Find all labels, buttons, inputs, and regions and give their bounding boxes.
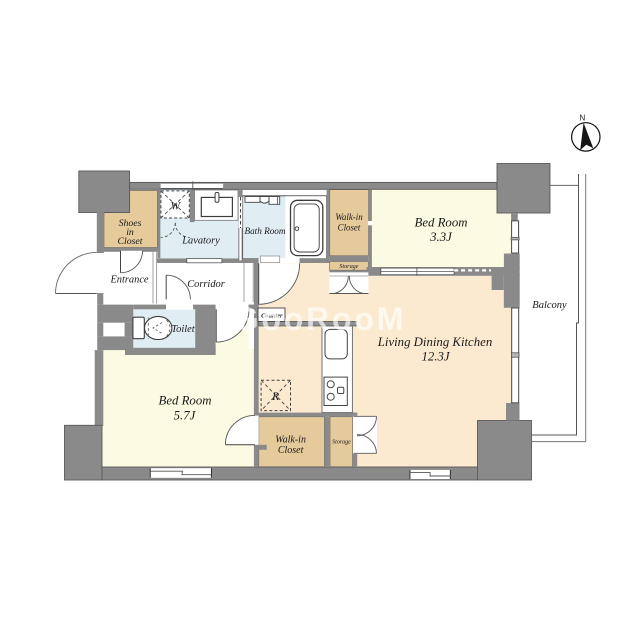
- svg-text:Storage: Storage: [339, 263, 359, 270]
- svg-text:Walk-in: Walk-in: [275, 435, 306, 446]
- svg-text:Bath Room: Bath Room: [244, 226, 285, 236]
- svg-text:Closet: Closet: [278, 445, 304, 456]
- svg-text:Closet: Closet: [338, 223, 361, 233]
- svg-text:Lavatory: Lavatory: [181, 236, 220, 247]
- svg-text:12.3J: 12.3J: [421, 350, 450, 364]
- svg-text:W: W: [171, 201, 182, 213]
- svg-text:Corridor: Corridor: [187, 279, 225, 290]
- svg-text:3.3J: 3.3J: [429, 230, 453, 244]
- svg-text:Living Dining Kitchen: Living Dining Kitchen: [377, 335, 492, 349]
- svg-text:Bed Room: Bed Room: [415, 216, 468, 230]
- svg-text:Entrance: Entrance: [109, 275, 148, 286]
- svg-text:Closet: Closet: [117, 236, 142, 247]
- svg-text:GooRooM: GooRooM: [234, 301, 406, 337]
- svg-text:Toilet: Toilet: [171, 324, 195, 335]
- svg-text:Walk-in: Walk-in: [335, 212, 363, 222]
- svg-text:Storage: Storage: [332, 439, 351, 445]
- svg-text:N: N: [579, 114, 585, 123]
- svg-text:Balcony: Balcony: [532, 300, 567, 311]
- svg-text:R: R: [271, 391, 279, 403]
- svg-text:Bed Room: Bed Room: [159, 394, 212, 408]
- svg-text:5.7J: 5.7J: [174, 409, 197, 423]
